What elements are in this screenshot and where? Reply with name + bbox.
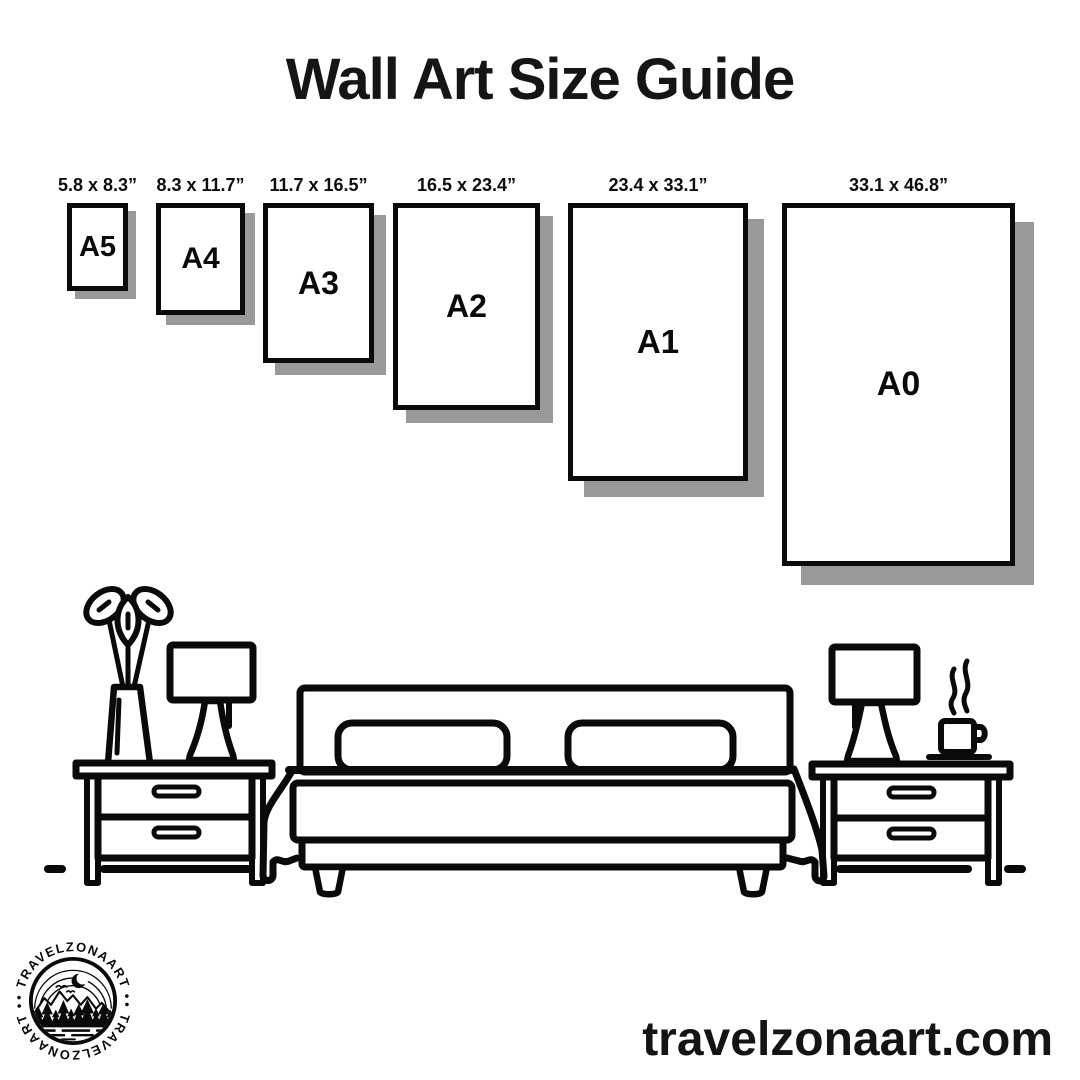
paper-a1: A1	[568, 203, 748, 481]
size-sheet-a5: 5.8 x 8.3” A5	[67, 176, 128, 291]
nightstand-right-icon	[812, 764, 1010, 883]
pillow-right-icon	[568, 723, 733, 770]
size-name: A4	[181, 242, 219, 276]
size-dims-label: 23.4 x 33.1”	[568, 176, 748, 196]
size-sheet-a1: 23.4 x 33.1” A1	[568, 176, 748, 481]
bedroom-illustration	[40, 585, 1040, 900]
size-sheet-a2: 16.5 x 23.4” A2	[393, 176, 540, 410]
nightstand-left-icon	[76, 763, 272, 883]
paper-a4: A4	[156, 203, 245, 315]
size-name: A1	[637, 323, 679, 361]
paper-a5: A5	[67, 203, 128, 291]
size-guide-infographic: Wall Art Size Guide 5.8 x 8.3” A5 8.3 x …	[0, 0, 1080, 1080]
potted-plant-icon	[80, 585, 177, 763]
website-url: travelzonaart.com	[642, 1012, 1053, 1067]
size-dims-label: 8.3 x 11.7”	[156, 176, 245, 196]
size-sheet-a3: 11.7 x 16.5” A3	[263, 176, 374, 363]
size-name: A0	[877, 365, 920, 404]
size-name: A3	[298, 265, 339, 302]
page-title: Wall Art Size Guide	[0, 46, 1080, 113]
pillow-left-icon	[338, 723, 507, 770]
coffee-cup-icon	[929, 661, 989, 757]
size-dims-label: 5.8 x 8.3”	[67, 176, 128, 196]
paper-a0: A0	[782, 203, 1015, 566]
size-sheet-a0: 33.1 x 46.8” A0	[782, 176, 1015, 566]
size-dims-label: 16.5 x 23.4”	[393, 176, 540, 196]
double-bed-icon	[263, 688, 824, 894]
paper-a3: A3	[263, 203, 374, 363]
paper-a2: A2	[393, 203, 540, 410]
table-lamp-right-icon	[832, 647, 917, 761]
size-dims-label: 11.7 x 16.5”	[263, 176, 374, 196]
table-lamp-left-icon	[170, 645, 253, 760]
size-dims-label: 33.1 x 46.8”	[782, 176, 1015, 196]
size-name: A5	[79, 231, 116, 264]
size-sheet-a4: 8.3 x 11.7” A4	[156, 176, 245, 315]
size-name: A2	[446, 288, 487, 325]
travelzonaart-logo-stamp: • TRAVELZONAART • • TRAVELZONAART •	[6, 934, 140, 1068]
